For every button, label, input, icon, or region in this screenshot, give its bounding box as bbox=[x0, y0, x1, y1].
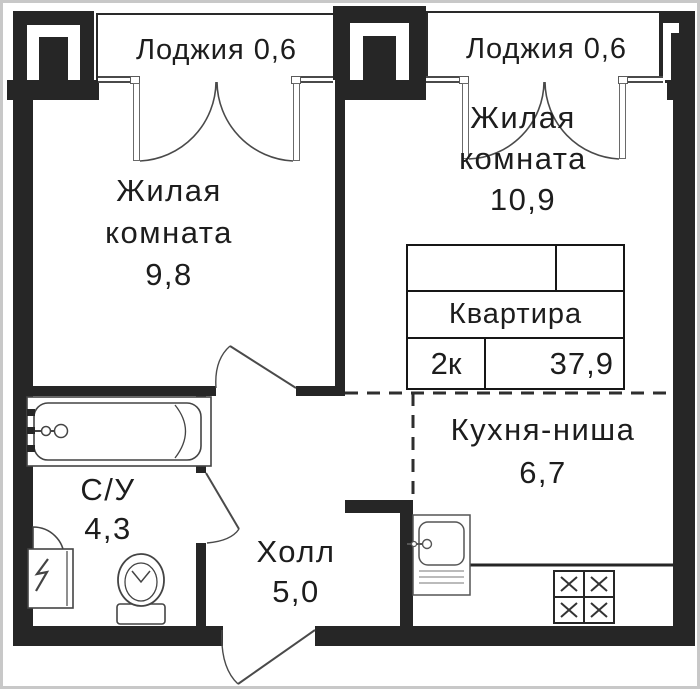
balcony-left-door-leaf-b bbox=[293, 83, 300, 161]
info-table-top-left-cell bbox=[408, 246, 555, 290]
bathroom-name: С/У bbox=[50, 470, 166, 509]
living-room-right-name-line2: комната bbox=[400, 138, 646, 179]
info-table-top-right-cell bbox=[555, 246, 623, 290]
wall-exterior-right bbox=[673, 98, 695, 626]
wall-hall-right bbox=[400, 500, 413, 626]
label-hall: Холл 5,0 bbox=[218, 532, 374, 612]
wall-bottom-left-of-entrance bbox=[13, 626, 223, 646]
column-top-right-core bbox=[671, 33, 695, 80]
hall-name: Холл bbox=[218, 532, 374, 572]
label-kitchen-niche: Кухня-ниша 6,7 bbox=[415, 408, 671, 494]
info-table-area-cell: 37,9 bbox=[486, 346, 623, 382]
hall-area: 5,0 bbox=[218, 572, 374, 612]
living-room-right-area: 10,9 bbox=[400, 179, 646, 220]
balcony-door-left-swing bbox=[140, 82, 293, 161]
wall-exterior-left bbox=[13, 98, 33, 626]
label-living-room-left: Жилая комната 9,8 bbox=[31, 170, 307, 296]
bathroom-area: 4,3 bbox=[50, 509, 166, 548]
washing-machine-icon bbox=[28, 549, 73, 608]
kitchen-sink-icon bbox=[407, 515, 470, 595]
toilet-icon bbox=[117, 554, 165, 624]
loggia-right: Лоджия 0,6 bbox=[426, 11, 667, 83]
label-living-room-right: Жилая комната 10,9 bbox=[400, 97, 646, 220]
wall-hall-kitchen-stub bbox=[345, 500, 400, 513]
wall-bottom-right-of-entrance bbox=[315, 626, 695, 646]
wall-bathroom-top bbox=[13, 386, 216, 396]
info-table-rooms-cell: 2к bbox=[408, 339, 486, 388]
wall-bathroom-right-lower bbox=[196, 543, 206, 626]
wall-bathroom-right-upper bbox=[196, 396, 206, 473]
apartment-info-table: Квартира 2к 37,9 bbox=[406, 244, 625, 390]
wall-room-door-jamb bbox=[296, 386, 345, 396]
info-table-top-row bbox=[408, 246, 623, 292]
info-table-title-cell: Квартира bbox=[408, 292, 623, 339]
kitchen-niche-name: Кухня-ниша bbox=[415, 408, 671, 451]
wall-room-divider bbox=[335, 98, 345, 396]
entrance-door-swing bbox=[222, 630, 315, 684]
info-table-bottom-row: 2к 37,9 bbox=[408, 339, 623, 388]
label-bathroom: С/У 4,3 bbox=[50, 470, 166, 548]
column-top-right-base bbox=[667, 80, 695, 100]
column-top-middle-core bbox=[363, 36, 396, 80]
column-top-left-core bbox=[39, 37, 68, 80]
column-top-left-base bbox=[7, 80, 99, 100]
loggia-left-label: Лоджия 0,6 bbox=[136, 32, 297, 67]
stove-burners-icon bbox=[554, 571, 614, 623]
living-room-right-name-line1: Жилая bbox=[400, 97, 646, 138]
room-door-swing bbox=[216, 346, 296, 388]
balcony-left-door-leaf-a bbox=[133, 83, 140, 161]
living-room-left-name-line2: комната bbox=[31, 212, 307, 254]
floor-plan: Лоджия 0,6 Лоджия 0,6 bbox=[0, 0, 700, 689]
bathtub-icon bbox=[27, 397, 211, 466]
living-room-left-name-line1: Жилая bbox=[31, 170, 307, 212]
window-left-loggia-a bbox=[98, 76, 133, 83]
kitchen-niche-area: 6,7 bbox=[415, 451, 671, 494]
window-right-loggia-b bbox=[625, 76, 663, 83]
window-left-loggia-b bbox=[300, 76, 333, 83]
living-room-left-area: 9,8 bbox=[31, 254, 307, 296]
loggia-left: Лоджия 0,6 bbox=[96, 13, 337, 83]
loggia-right-label: Лоджия 0,6 bbox=[466, 31, 627, 66]
